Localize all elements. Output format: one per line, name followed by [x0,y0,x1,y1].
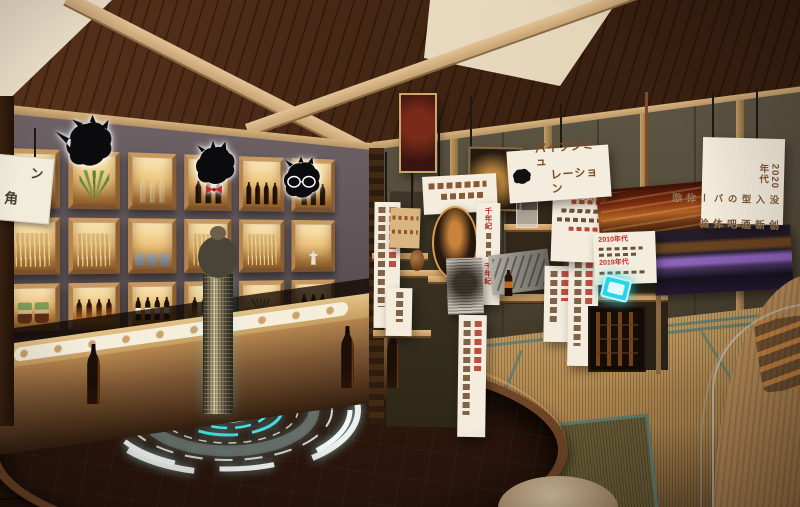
mascot-head-cap-icon [53,109,119,177]
theme-col-jp: 没入型のバー体験 [705,191,779,205]
faux-vertical-text [462,321,470,415]
mosaic-column [203,272,233,414]
sign-char-bottom: 角 [3,188,19,209]
small-card [386,288,413,336]
bottle [254,182,260,204]
faux-line [561,208,599,213]
shelf-cubby-eagle [292,220,335,272]
mug [135,254,145,266]
bottle [272,183,278,205]
mural-figures [392,230,418,235]
faux-title-text [441,192,485,200]
mosaic-sphere [198,236,238,278]
hanger-rod [385,152,387,204]
mascot-head-glasses-icon [280,155,322,205]
faux-line [599,253,637,257]
faux-vertical-text [573,262,581,346]
bw-photo-detail [492,253,548,291]
era-2010-panel: 2010年代 2019年代 [593,231,657,285]
wheat-sheaf [16,233,50,267]
sphere-knob [210,226,226,240]
shelf-cubby-wheat [68,218,119,275]
bottle [149,178,156,203]
faux-line [557,217,599,222]
egyptian-mural-picture [389,207,420,248]
hanger-rod [438,118,440,178]
aloe-plant [79,170,109,201]
sign-hanger-rod [34,128,36,160]
shelf-cubby-wheat [6,217,60,275]
lit-bottle-cabinet [588,306,646,372]
mascot-head-bowtie-icon [190,140,238,198]
faux-vertical-text [474,321,482,371]
mascot-head-mini-icon [512,167,532,186]
wheat-sheaf [248,234,277,265]
engraving-lines [446,257,484,314]
hanger-rod [470,96,472,150]
faux-vertical-text [585,262,593,306]
theme-col-zh: 创新酒吧体验 [705,208,780,230]
eagle-statue [308,250,318,264]
museum-room-render: ン 角 [0,0,800,507]
shelf-cubby-bottles [239,156,284,212]
faux-vertical-text [395,292,403,322]
era-2019-label: 2019年代 [599,258,651,268]
millennium-red-text: 千年紀 [484,207,492,230]
bottle [263,182,269,204]
hanging-sign-partial: ン 角 [0,154,55,225]
era-2010-label: 2010年代 [598,235,650,245]
mug [160,254,170,266]
bottle [159,178,166,203]
shelf-cubby-wheat [239,219,284,272]
faux-red-line [569,227,599,232]
herb-vase [17,302,31,323]
shelf-cubby-clear-bottles [128,152,177,210]
clay-amphora [410,250,424,271]
shelf-cubby-mugs [128,218,177,273]
bottle [139,177,146,202]
faux-title-text [428,181,486,190]
bw-photo [488,248,552,295]
hanger-rod [756,88,758,140]
herb-vase [35,302,49,323]
framed-poster [399,93,437,173]
corner-post [0,96,14,426]
sim-sign-line2: レーション [550,166,606,197]
sign-char-top: ン [30,163,45,183]
mug [147,254,157,266]
faux-vertical-text [378,207,386,307]
tall-text-panel [457,315,487,437]
faux-vertical-text [550,271,558,325]
theme-col-2020: 2020年代 [706,132,781,189]
wheat-sheaf [78,233,111,267]
mural-figures [392,216,418,221]
faux-line [599,247,643,252]
bottle [246,182,252,204]
simulation-sign: パイプシミュ レーション 上酒の時代中 [506,145,611,204]
theme-2020-panel: 2020年代 没入型のバー体験 创新酒吧体验 [701,137,785,225]
engraving-picture [446,257,484,314]
